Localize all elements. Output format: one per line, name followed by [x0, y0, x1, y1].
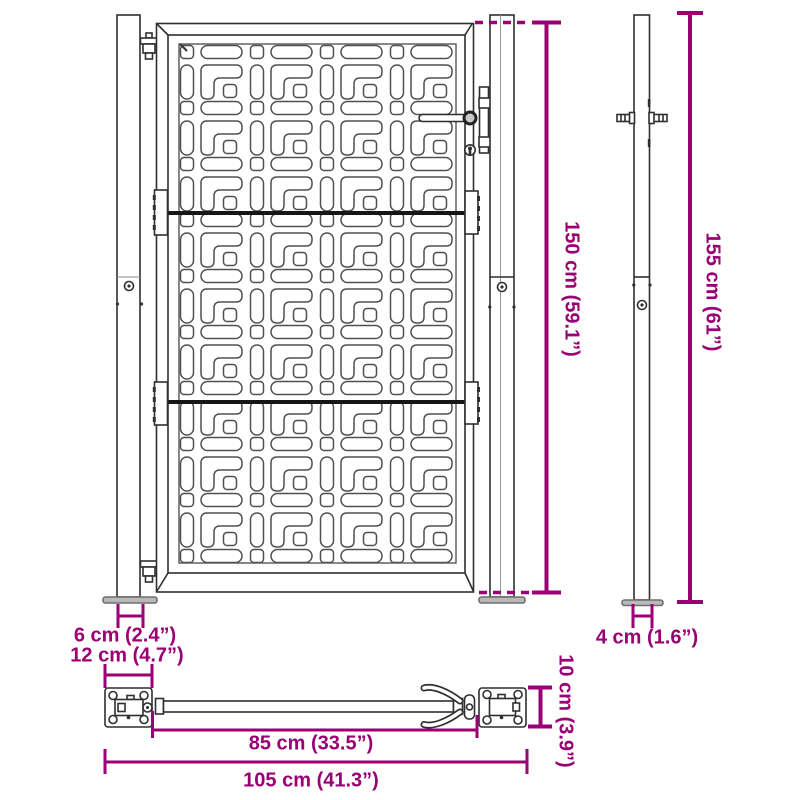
dim-label-inner-width: 85 cm (33.5”): [249, 733, 374, 756]
gate-hinge-plate-bottom: [153, 382, 168, 425]
dim-frame-depth-line: [528, 688, 552, 727]
top-view-left-plate: [105, 688, 152, 727]
dim-post-width-line: [633, 604, 652, 628]
dim-label-plate-width: 12 cm (4.7”): [70, 645, 183, 668]
dim-label-frame-depth: 10 cm (3.9”): [554, 654, 577, 767]
dim-post-height-line: [677, 13, 703, 602]
technical-drawing: [0, 0, 800, 800]
gate-handle: [419, 115, 467, 122]
dim-label-gate-height: 150 cm (59.1”): [560, 221, 583, 357]
dim-label-total-width: 105 cm (41.3”): [243, 770, 379, 793]
side-view-post: [617, 15, 667, 606]
dim-label-post-width: 4 cm (1.6”): [596, 627, 698, 650]
front-view-left-post: [103, 15, 158, 603]
gate-latch-plate-top: [465, 191, 480, 234]
top-view: [105, 687, 526, 727]
gate-leaf: [153, 24, 492, 593]
gate-hinge-plate-top: [153, 190, 168, 235]
top-view-bar-cap-left: [156, 699, 164, 715]
gate-latch-plate-bottom: [465, 382, 480, 424]
diagram-canvas: 150 cm (59.1”) 155 cm (61”) 6 cm (2.4”) …: [0, 0, 800, 800]
top-view-right-plate: [479, 688, 526, 727]
top-view-frame-bar: [164, 701, 454, 712]
dim-plate-width-line: [105, 664, 152, 688]
dim-label-post-height: 155 cm (61”): [701, 233, 724, 352]
